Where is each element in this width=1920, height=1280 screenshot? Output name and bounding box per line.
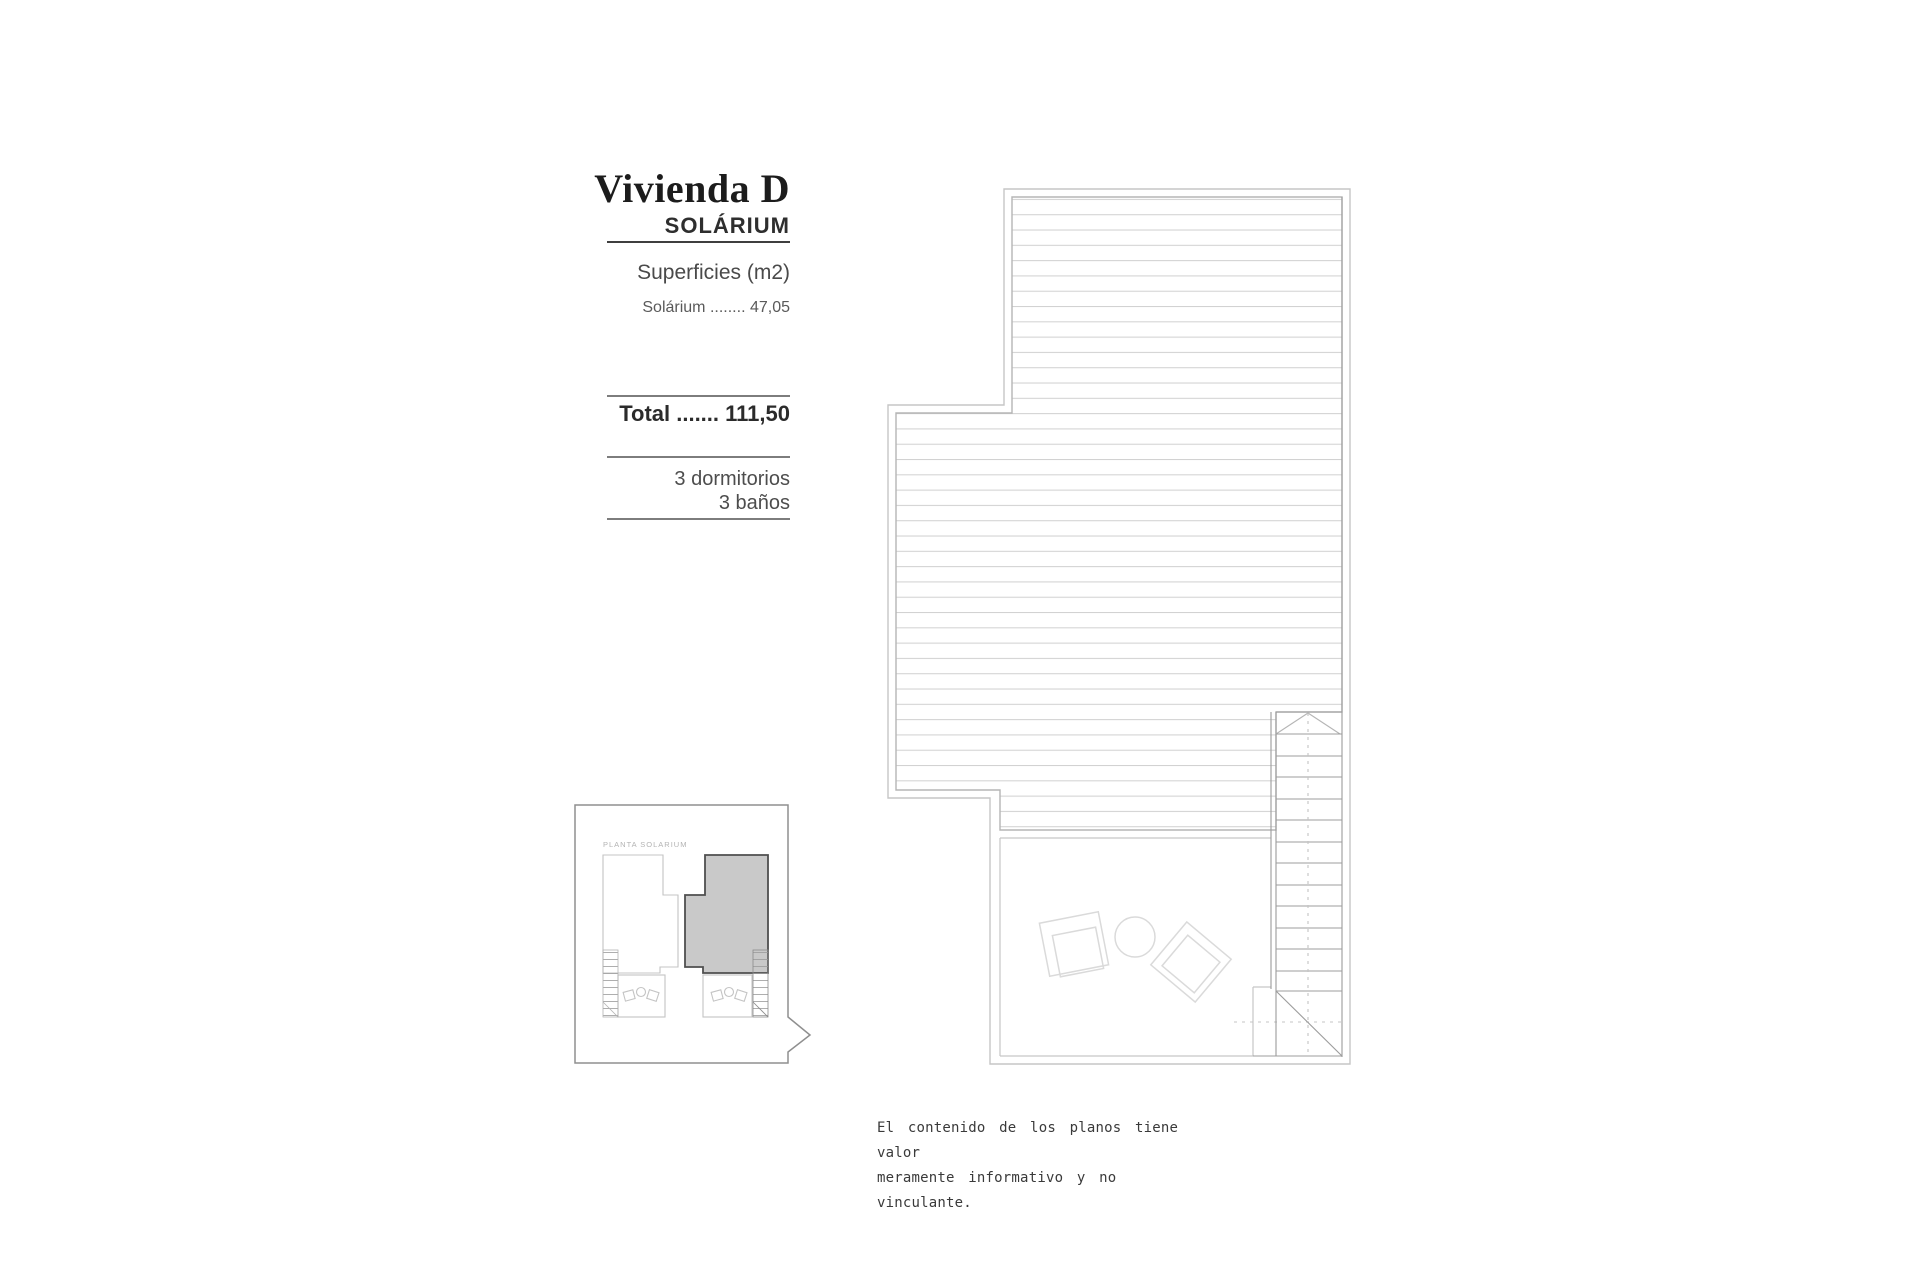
round-table-icon (1115, 917, 1155, 957)
disclaimer-note: El contenido de los planos tiene valor m… (877, 1116, 1207, 1216)
floor-plan (888, 189, 1350, 1064)
key-plan: PLANTA SOLARIUM (575, 805, 810, 1063)
solarium-deck (896, 197, 1342, 830)
disclaimer-line-2: meramente informativo y no vinculante. (877, 1166, 1207, 1216)
armchair-left-icon (1039, 912, 1108, 977)
armchair-right-icon (1151, 922, 1231, 1002)
terrace (1000, 838, 1271, 1056)
disclaimer-line-1: El contenido de los planos tiene valor (877, 1116, 1207, 1166)
key-plan-stairs (753, 950, 768, 1017)
stair-treads (1276, 734, 1342, 971)
stair-landing (1253, 991, 1342, 1056)
key-plan-label: PLANTA SOLARIUM (603, 840, 687, 849)
terrace-furniture (1039, 912, 1231, 1002)
plan-canvas: PLANTA SOLARIUM (0, 0, 1920, 1280)
